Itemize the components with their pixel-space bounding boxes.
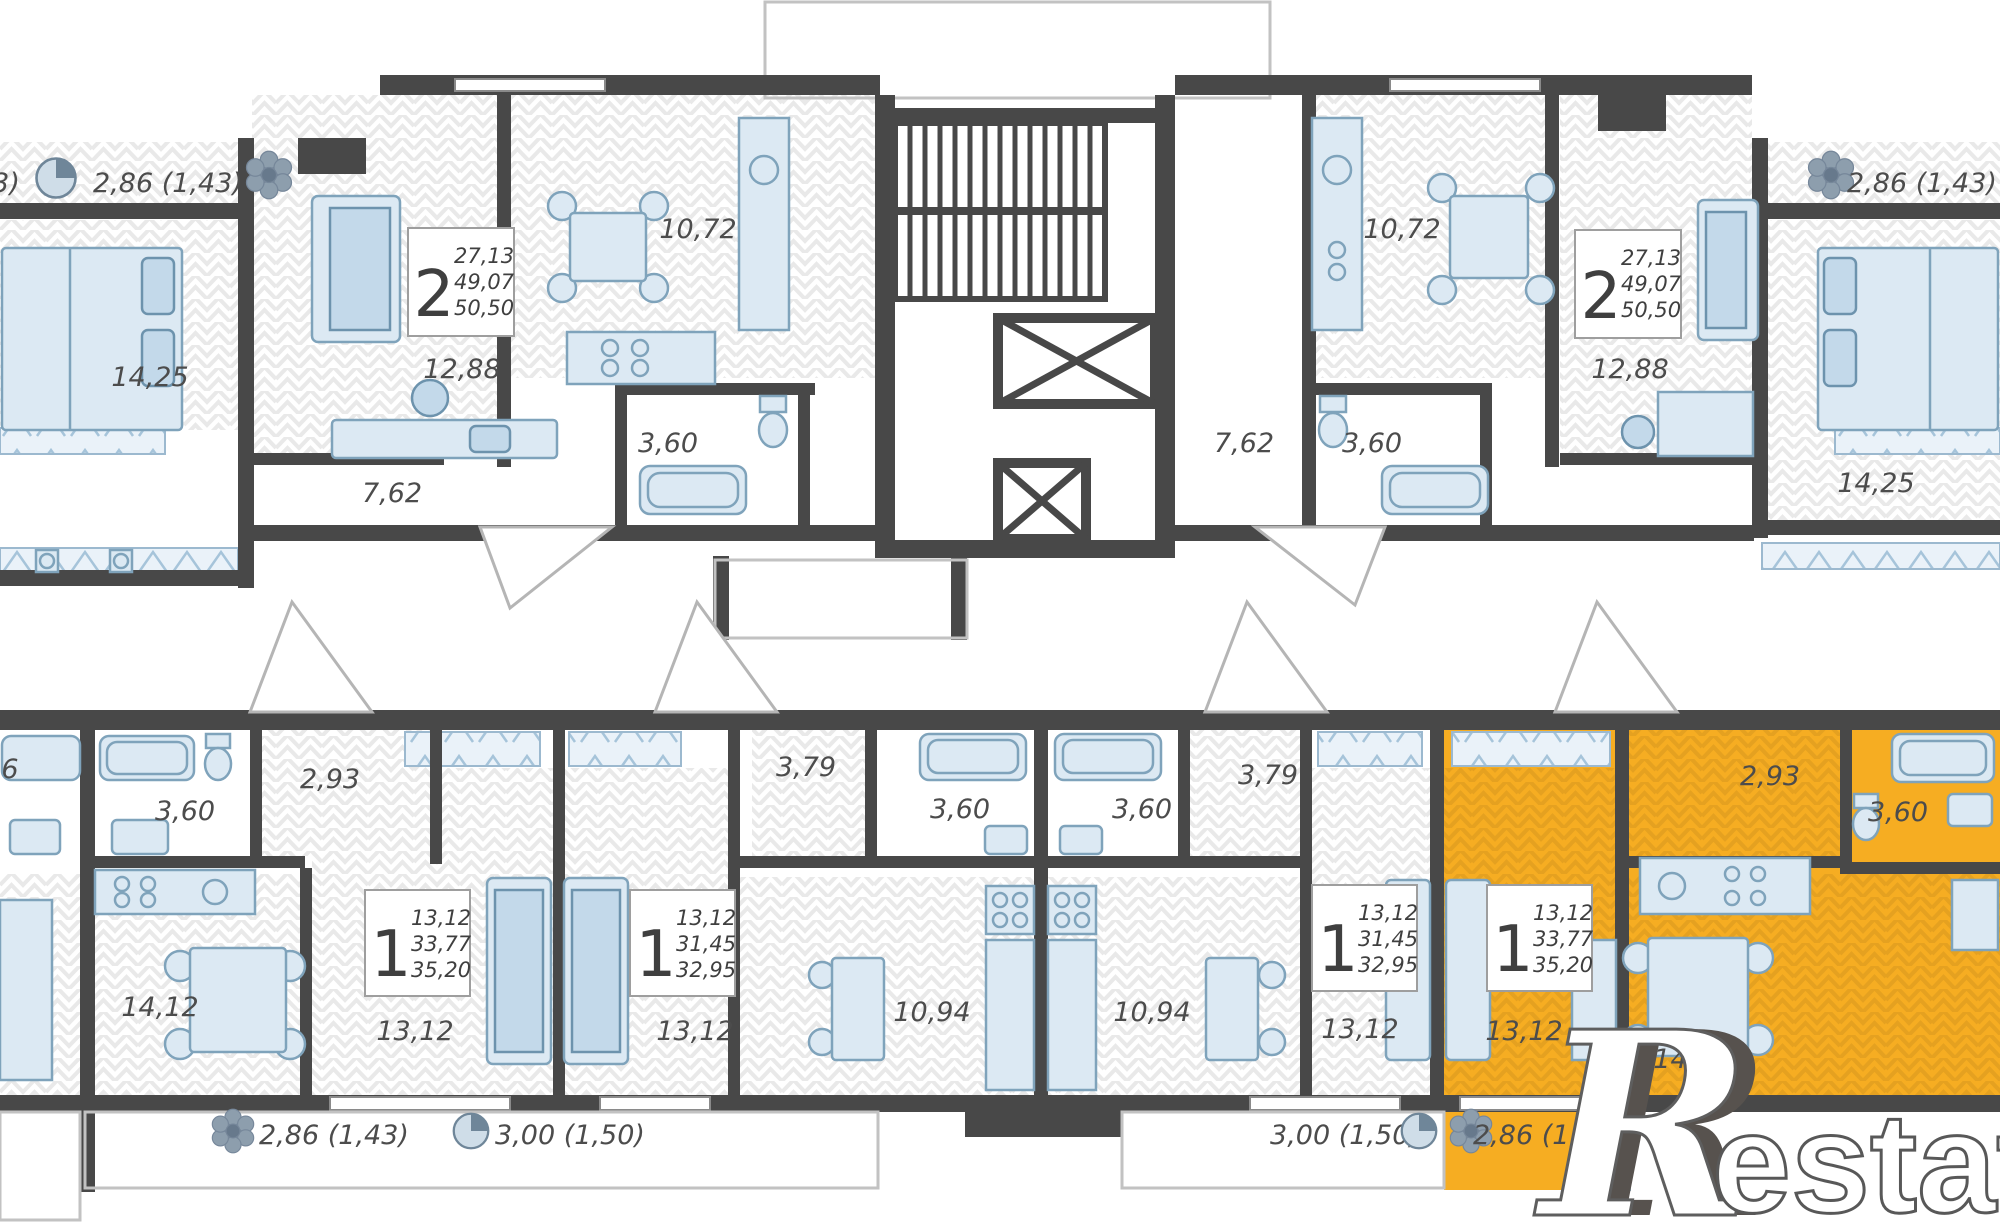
watermark-text: estate: [1712, 1084, 2000, 1223]
fan-icon: [454, 1114, 489, 1149]
room-label: 2,93: [1740, 761, 1800, 792]
toilet: [205, 734, 231, 780]
room-label: 7,62: [362, 478, 422, 509]
svg-text:35,20: 35,20: [1533, 953, 1593, 977]
svg-text:35,20: 35,20: [411, 958, 471, 982]
apartment-card-1k-a[interactable]: 1 13,12 33,77 35,20: [365, 890, 472, 996]
top-section: 3) 2,86 (1,43) 14,25 12,88 10,72 3,60 7,…: [0, 2, 2000, 640]
flower-icon: [212, 1109, 253, 1153]
bathtub: [1892, 734, 1994, 782]
svg-text:31,45: 31,45: [1358, 927, 1418, 951]
room-label: 10,94: [893, 997, 970, 1028]
room-label: 2,93: [300, 764, 360, 795]
bathtub: [640, 466, 746, 514]
balcony-label: 2,86 (1,43): [93, 168, 243, 199]
sofa: [312, 196, 400, 342]
apartment-card-1k-c[interactable]: 1 13,12 31,45 32,95: [1312, 885, 1418, 991]
room-label: 3,60: [1112, 794, 1172, 825]
balcony-label: 3,00 (1,50): [495, 1120, 645, 1151]
room-label: 14,12: [121, 992, 198, 1023]
room-label: 10,94: [1113, 997, 1190, 1028]
room-label: 7,62: [1214, 428, 1274, 459]
room-label: 14,25: [1837, 468, 1914, 499]
fan-icon: [1402, 1114, 1437, 1149]
toilet: [759, 396, 787, 447]
apartment-card-2k-right[interactable]: 2 27,13 49,07 50,50: [1575, 230, 1682, 338]
room-label: 3,79: [776, 752, 836, 783]
room-label: 12,88: [1591, 354, 1668, 385]
room-label: 3,60: [930, 794, 990, 825]
bathtub: [1382, 466, 1488, 514]
entrance-porch: [715, 560, 967, 638]
svg-text:1: 1: [1493, 913, 1534, 987]
room-label-cut: 6: [1, 754, 18, 785]
fan-icon: [37, 159, 76, 198]
apartment-card-1k-highlighted[interactable]: 1 13,12 33,77 35,20: [1487, 885, 1594, 991]
svg-text:13,12: 13,12: [411, 906, 471, 930]
sofa: [487, 878, 551, 1064]
bathtub: [1055, 734, 1161, 780]
room-label: 3,60: [638, 428, 698, 459]
svg-text:50,50: 50,50: [454, 296, 514, 320]
sofa: [1698, 200, 1758, 340]
entrance-door: [480, 527, 612, 608]
svg-text:49,07: 49,07: [1621, 272, 1682, 296]
svg-text:31,45: 31,45: [676, 932, 736, 956]
svg-text:13,12: 13,12: [676, 906, 736, 930]
balcony-label: 2,86 (1,43): [259, 1120, 409, 1151]
svg-text:2: 2: [414, 258, 455, 332]
svg-text:2: 2: [1581, 260, 1622, 334]
flower-icon: [247, 151, 292, 199]
bathtub: [920, 734, 1026, 780]
floor-plan: 3) 2,86 (1,43) 14,25 12,88 10,72 3,60 7,…: [0, 0, 2000, 1223]
apartment-card-2k-left[interactable]: 2 27,13 49,07 50,50: [408, 228, 515, 336]
room-label: 13,12: [656, 1016, 733, 1047]
elevator-shaft-small: [998, 463, 1086, 539]
staircase: [895, 123, 1105, 299]
svg-text:1: 1: [371, 918, 412, 992]
room-label: 12,88: [423, 354, 500, 385]
room-label: 3,60: [155, 796, 215, 827]
kitchen-counter: [95, 870, 255, 914]
entrance-door: [1255, 527, 1385, 605]
entrance-door: [1205, 602, 1327, 712]
balcony-rail: [0, 1112, 80, 1220]
elevator-shaft-large: [998, 318, 1155, 404]
sofa: [1446, 880, 1490, 1060]
svg-text:13,12: 13,12: [1533, 901, 1593, 925]
room-label: 3,79: [1238, 760, 1298, 791]
svg-text:32,95: 32,95: [676, 958, 736, 982]
kitchen-counter: [986, 886, 1034, 1090]
sink: [985, 826, 1027, 854]
apartment-card-1k-b[interactable]: 1 13,12 31,45 32,95: [630, 890, 736, 996]
apartment-right-partial: [1818, 248, 1998, 430]
window: [455, 79, 605, 91]
room-label: 10,72: [1363, 214, 1440, 245]
sink: [1948, 794, 1992, 826]
svg-text:33,77: 33,77: [411, 932, 472, 956]
svg-text:33,77: 33,77: [1533, 927, 1594, 951]
room-label: 10,72: [659, 214, 736, 245]
kitchen-counter: [1312, 118, 1362, 330]
sink: [1060, 826, 1102, 854]
room-label: 14,25: [111, 362, 188, 393]
balcony-label: 3,00 (1,50): [1270, 1120, 1420, 1151]
entrance-door: [250, 602, 372, 712]
svg-text:50,50: 50,50: [1621, 298, 1681, 322]
window: [1390, 79, 1540, 91]
svg-text:27,13: 27,13: [1621, 246, 1681, 270]
svg-text:13,12: 13,12: [1358, 901, 1418, 925]
balcony-glazing: [0, 428, 165, 454]
room-label: 3,60: [1868, 797, 1928, 828]
room-label: 13,12: [376, 1016, 453, 1047]
svg-text:32,95: 32,95: [1358, 953, 1418, 977]
svg-text:1: 1: [1318, 913, 1359, 987]
sofa: [564, 878, 628, 1064]
balcony-label: 2,86 (1,43): [1847, 168, 1997, 199]
bathtub: [100, 736, 194, 780]
svg-text:49,07: 49,07: [454, 270, 515, 294]
balcony-label-cut: 3): [0, 168, 20, 199]
room-label: 13,12: [1321, 1014, 1398, 1045]
apartment-left-partial: [2, 248, 182, 430]
entrance-door: [1555, 602, 1677, 712]
svg-text:1: 1: [636, 918, 677, 992]
room-label: 3,60: [1342, 428, 1402, 459]
kitchen-counter: [1048, 886, 1096, 1090]
svg-text:27,13: 27,13: [454, 244, 514, 268]
